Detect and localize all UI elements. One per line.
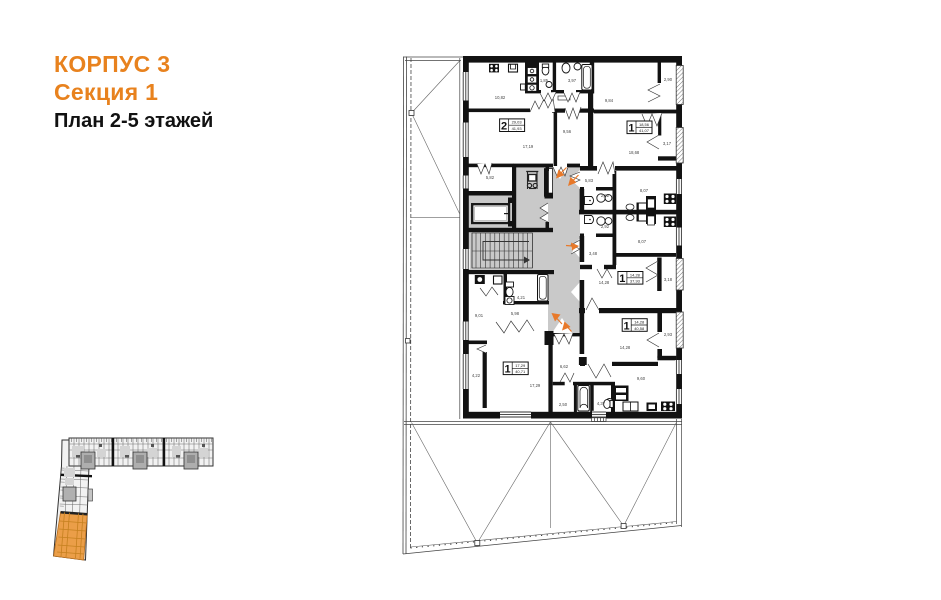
svg-text:18,56: 18,56 (639, 122, 650, 127)
svg-text:3,18: 3,18 (664, 277, 673, 282)
svg-text:40,71: 40,71 (515, 369, 526, 374)
svg-text:14,28: 14,28 (599, 280, 610, 285)
svg-text:3,48: 3,48 (589, 251, 598, 256)
svg-text:10,82: 10,82 (495, 95, 506, 100)
svg-text:1: 1 (624, 320, 630, 332)
svg-text:14,28: 14,28 (620, 345, 631, 350)
svg-text:17,29: 17,29 (530, 383, 541, 388)
svg-text:5,82: 5,82 (486, 175, 495, 180)
svg-text:План 2-5 этажей: План 2-5 этажей (54, 110, 213, 132)
svg-text:КОРПУС 3: КОРПУС 3 (54, 51, 170, 77)
svg-text:5,83: 5,83 (585, 178, 594, 183)
svg-text:17,29: 17,29 (515, 363, 526, 368)
svg-text:1: 1 (628, 123, 634, 135)
svg-text:3,97: 3,97 (568, 78, 577, 83)
svg-text:1: 1 (619, 273, 625, 285)
svg-text:1: 1 (505, 364, 511, 376)
svg-text:1,85: 1,85 (540, 78, 549, 83)
svg-text:2,92: 2,92 (601, 193, 610, 198)
svg-text:8,07: 8,07 (638, 239, 647, 244)
svg-text:29,03: 29,03 (512, 120, 523, 125)
svg-text:9,84: 9,84 (605, 98, 614, 103)
svg-text:2,93: 2,93 (664, 332, 673, 337)
svg-text:9,60: 9,60 (637, 376, 646, 381)
svg-text:9,01: 9,01 (475, 313, 484, 318)
svg-text:8,07: 8,07 (640, 188, 649, 193)
svg-text:5,98: 5,98 (511, 311, 520, 316)
svg-text:4,22: 4,22 (472, 373, 481, 378)
svg-text:2: 2 (501, 121, 507, 133)
svg-text:9,56: 9,56 (563, 129, 572, 134)
svg-text:14,28: 14,28 (634, 320, 645, 325)
svg-text:41,93: 41,93 (512, 126, 523, 131)
svg-text:37,93: 37,93 (630, 279, 641, 284)
svg-text:Секция 1: Секция 1 (54, 79, 158, 105)
svg-text:17,19: 17,19 (523, 144, 534, 149)
svg-text:4,21: 4,21 (517, 295, 526, 300)
svg-text:18,68: 18,68 (629, 150, 640, 155)
svg-text:40,58: 40,58 (634, 326, 645, 331)
svg-text:6,62: 6,62 (560, 364, 569, 369)
svg-text:3,17: 3,17 (663, 141, 672, 146)
svg-text:2,90: 2,90 (664, 77, 673, 82)
svg-text:2,92: 2,92 (601, 224, 610, 229)
svg-text:41,07: 41,07 (639, 128, 650, 133)
svg-text:4,37: 4,37 (597, 401, 606, 406)
svg-text:2,50: 2,50 (559, 402, 568, 407)
svg-text:14,28: 14,28 (630, 272, 641, 277)
